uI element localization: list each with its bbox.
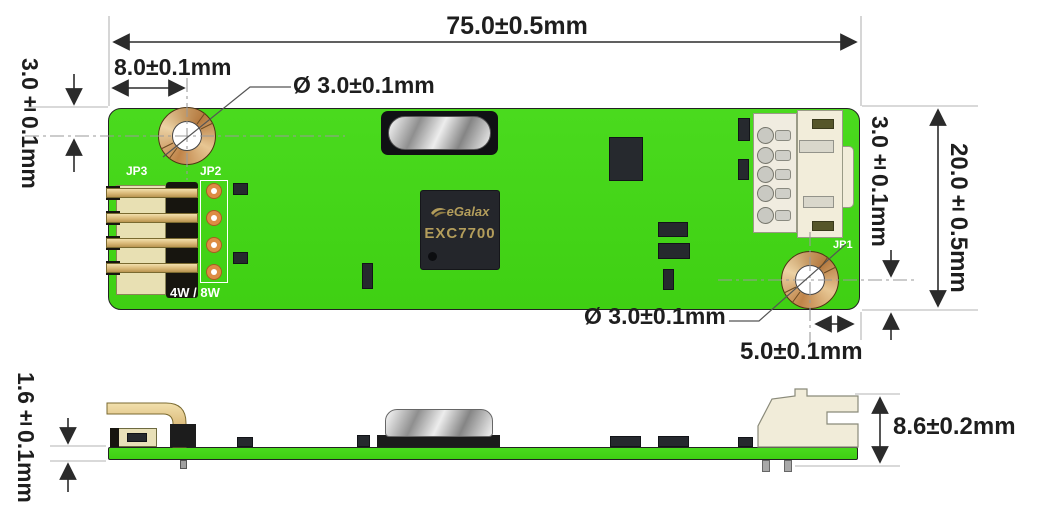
jp3-pin bbox=[106, 238, 198, 248]
side-component-mark bbox=[127, 433, 147, 442]
smd-component bbox=[233, 252, 248, 264]
usb-side-profile bbox=[755, 386, 861, 448]
usb-through-pin bbox=[784, 460, 792, 472]
solder-pad bbox=[757, 127, 774, 144]
pcb-dimension-drawing: eGalax EXC7700 JP3 JP2 4W / 8W USB 232 J… bbox=[0, 0, 1044, 527]
solder-pad bbox=[757, 166, 774, 183]
chip-brand-label: eGalax bbox=[447, 204, 490, 219]
dim-hole2-offset-x: 5.0±0.1mm bbox=[740, 338, 863, 366]
wire-mode-label: 4W / 8W bbox=[170, 285, 220, 300]
jp2-hole bbox=[206, 264, 222, 280]
chip-pin1-dot bbox=[428, 252, 437, 261]
dim-connector-height: 8.6±0.2mm bbox=[893, 413, 1016, 441]
jp3-pin bbox=[106, 188, 198, 198]
usb-label: USB 232 bbox=[786, 97, 835, 111]
side-component-cap bbox=[110, 428, 119, 447]
usb-contact bbox=[812, 119, 834, 129]
jp2-hole bbox=[206, 210, 222, 226]
jp3-pin bbox=[106, 213, 198, 223]
solder-tab bbox=[775, 169, 791, 180]
jp3-label: JP3 bbox=[126, 164, 147, 178]
solder-pad bbox=[757, 207, 774, 224]
smd-component bbox=[658, 222, 688, 237]
smd-component bbox=[362, 263, 373, 289]
mounting-hole bbox=[172, 121, 202, 151]
egalax-logo-icon bbox=[431, 207, 447, 217]
solder-pad bbox=[757, 185, 774, 202]
crystal-can bbox=[388, 116, 491, 150]
smd-component bbox=[738, 159, 749, 180]
side-smd bbox=[738, 437, 753, 447]
jp1-label: JP1 bbox=[833, 239, 853, 251]
usb-connector-housing bbox=[797, 110, 843, 238]
crystal-side-can bbox=[385, 409, 493, 437]
solder-tab bbox=[775, 188, 791, 199]
mounting-hole bbox=[795, 265, 825, 295]
side-smd bbox=[658, 436, 689, 447]
smd-component bbox=[663, 269, 674, 290]
dim-overall-width: 75.0±0.5mm bbox=[397, 12, 637, 41]
solder-tab bbox=[775, 130, 791, 141]
side-smd bbox=[237, 437, 253, 447]
smd-component bbox=[233, 183, 248, 195]
through-pin bbox=[180, 460, 187, 469]
jp3-side-housing bbox=[170, 424, 196, 447]
usb-contact bbox=[812, 221, 834, 231]
dim-hole2-diameter: Ø 3.0±0.1mm bbox=[584, 303, 726, 330]
dim-hole2-offset-y: 3.0±0.1mm bbox=[866, 116, 893, 247]
chip-model-label: EXC7700 bbox=[421, 225, 499, 242]
dim-overall-height: 20.0±0.5mm bbox=[944, 143, 972, 293]
solder-tab bbox=[775, 150, 791, 161]
jp2-hole bbox=[206, 237, 222, 253]
dim-hole1-diameter: Ø 3.0±0.1mm bbox=[293, 72, 435, 99]
pcb-side-view bbox=[108, 447, 858, 460]
smd-component bbox=[738, 118, 750, 141]
smd-component bbox=[658, 243, 690, 259]
side-smd bbox=[357, 435, 370, 447]
jp3-pin bbox=[106, 263, 198, 273]
solder-pad bbox=[757, 147, 774, 164]
jp2-hole bbox=[206, 183, 222, 199]
usb-slot bbox=[803, 196, 834, 208]
solder-tab bbox=[775, 210, 791, 221]
dim-hole1-offset-x: 8.0±0.1mm bbox=[114, 54, 231, 81]
usb-through-pin bbox=[762, 460, 770, 472]
dim-board-thickness: 1.6±0.1mm bbox=[12, 372, 39, 503]
side-smd bbox=[610, 436, 641, 447]
dim-hole1-offset-y: 3.0±0.1mm bbox=[16, 58, 43, 189]
smd-component bbox=[609, 137, 643, 181]
usb-slot bbox=[799, 140, 834, 153]
jp2-label: JP2 bbox=[200, 164, 221, 178]
